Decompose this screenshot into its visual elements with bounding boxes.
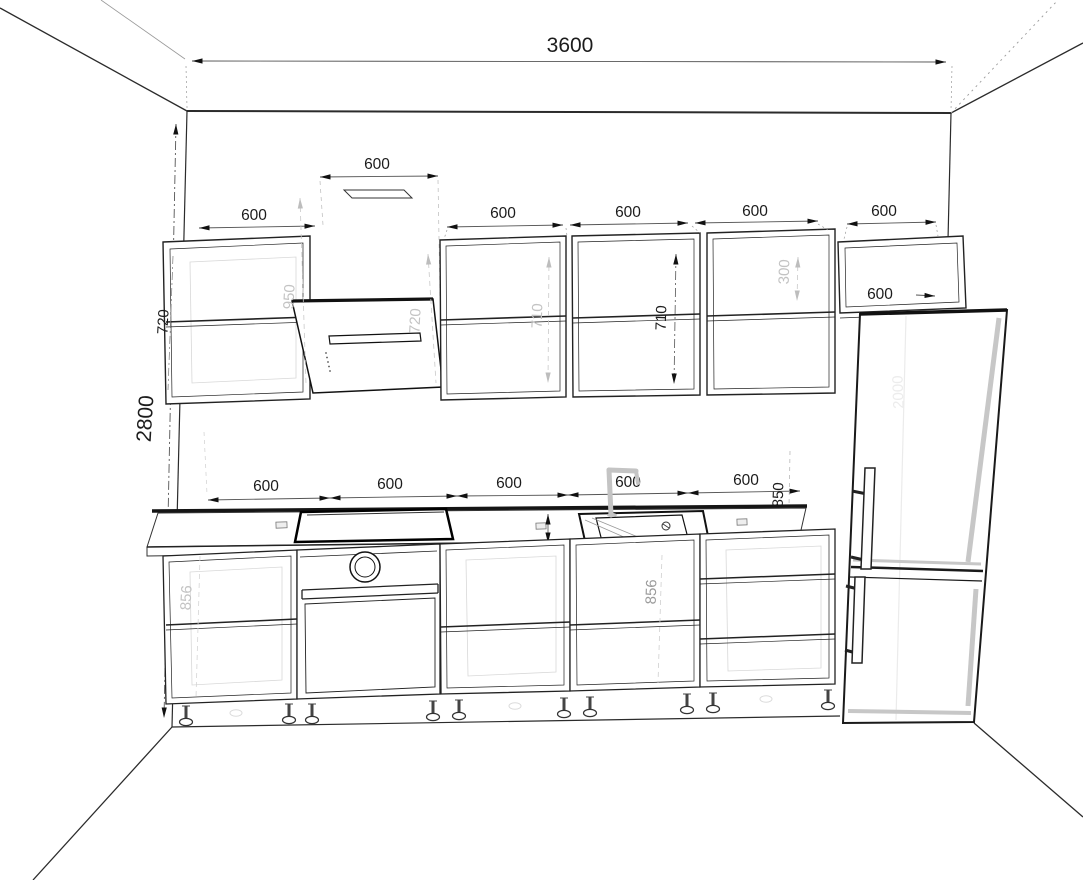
upper-cabinet-c [707, 229, 835, 395]
dim-base-3-label: 600 [496, 475, 522, 492]
dimension-worktop-height: 850 [770, 451, 790, 508]
dim-fridge-cabinet-depth-label: 600 [867, 286, 893, 303]
ceiling-vent [344, 190, 412, 198]
dimension-hood-width: 600 [320, 156, 440, 296]
kitchen-elevation-drawing: 3600 2800 600 720 600 9 [0, 0, 1083, 880]
dim-hood-clearance-label: 950 [280, 284, 298, 310]
dim-upper-a-height-label: 710 [529, 303, 547, 329]
sink-cabinet [570, 534, 700, 691]
dim-fridge-cabinet-height-label: 300 [776, 259, 794, 285]
base-cabinet-5 [700, 529, 835, 687]
cooktop [295, 509, 453, 542]
dim-worktop-height-label: 850 [770, 482, 788, 508]
base-cabinet-1 [163, 550, 297, 704]
dim-fridge-height-label: 2000 [889, 375, 907, 409]
dim-base-5-label: 600 [733, 472, 759, 489]
upper-cabinet-b [572, 233, 700, 397]
dim-hood-height-label: 720 [406, 308, 424, 334]
dim-upper-left-width-label: 600 [241, 207, 267, 224]
dim-base-1-height-label: 856 [177, 585, 195, 611]
upper-cabinet-a [440, 236, 566, 400]
fridge-top-cabinet [838, 236, 966, 318]
dim-upper-left-height-label: 720 [154, 309, 172, 335]
counter-fitting-2 [536, 523, 546, 529]
dimension-wall-width: 3600 [186, 34, 952, 110]
oven-cabinet [297, 544, 440, 699]
dim-base-2-label: 600 [377, 476, 403, 493]
dim-upper-b-width-label: 600 [615, 204, 641, 221]
dim-sink-cabinet-height-label: 856 [643, 579, 661, 605]
dim-hood-width-label: 600 [364, 156, 390, 173]
dimension-upper-left-width: 600 [199, 207, 315, 228]
dim-upper-b-height-label: 710 [653, 305, 671, 331]
refrigerator: 2000 [843, 310, 1007, 723]
dimension-fridge-cabinet-top-width: 600 [844, 203, 938, 239]
dim-fridge-cabinet-width-label: 600 [871, 203, 897, 220]
upper-cabinet-left [163, 236, 310, 404]
base-cabinet-3 [440, 539, 570, 694]
dim-wall-width-label: 3600 [547, 34, 594, 57]
dim-base-1-label: 600 [253, 478, 279, 495]
dimension-base-widths: 600 600 600 600 600 [204, 432, 800, 500]
dim-upper-c-width-label: 600 [742, 203, 768, 220]
counter-fitting-1 [276, 522, 287, 528]
dim-upper-a-width-label: 600 [490, 205, 516, 222]
dim-wall-height-label: 2800 [133, 395, 159, 443]
counter-fitting-3 [737, 519, 747, 525]
kitchen-elevation-page: 3600 2800 600 720 600 9 [0, 0, 1083, 880]
